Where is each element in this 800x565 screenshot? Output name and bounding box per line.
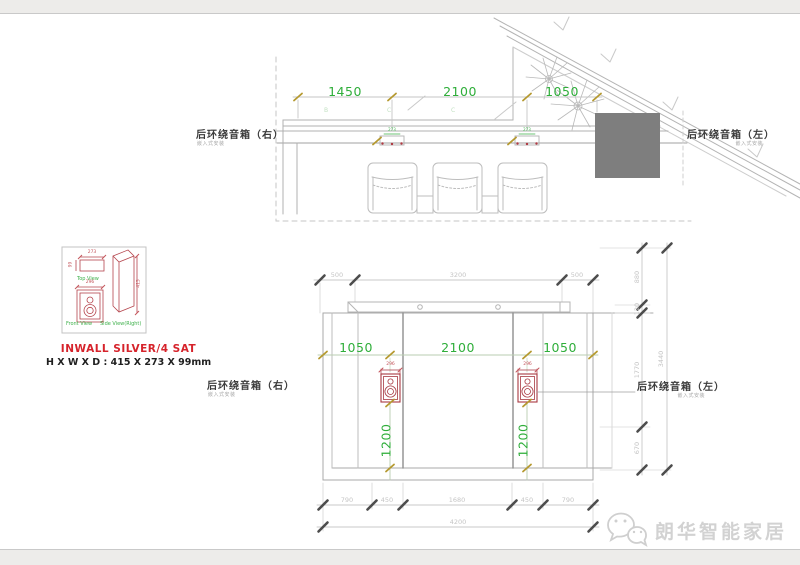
height-dim-1200: 1200 [379, 420, 394, 462]
grid-letter: B [324, 107, 328, 114]
plan-speaker-right [380, 134, 404, 145]
wechat-logo-icon [608, 514, 646, 546]
flush-mount-note: 嵌入式安装 [687, 140, 763, 147]
dim-2100: 2100 [440, 84, 480, 99]
front-view-label: Front View [66, 321, 92, 327]
top-elevation [276, 17, 800, 221]
brand-watermark: 朗华智能家居 [655, 517, 787, 544]
grid-letter: C [451, 107, 455, 114]
dim-2100: 2100 [438, 340, 478, 355]
height-dim-1200: 1200 [516, 420, 531, 462]
rear-right-speaker-label-top: 后环绕音箱（右） [196, 126, 284, 141]
seg-dim: 1680 [443, 496, 471, 504]
dim-1050-left: 1050 [336, 340, 376, 355]
flush-mount-note: 嵌入式安装 [197, 140, 225, 147]
dim-1450: 1450 [325, 84, 365, 99]
inwall-speaker-left [518, 369, 537, 402]
detail-dim-cutout: 296 [82, 280, 98, 285]
right-dim: 120 [633, 294, 641, 324]
speaker-top-view [80, 260, 104, 271]
bottom-elevation [314, 243, 672, 532]
total-dim: 4200 [444, 518, 472, 526]
seg-dim: 450 [375, 496, 399, 504]
seg-dim: 450 [515, 496, 539, 504]
detail-dim-width: 273 [84, 250, 100, 255]
flush-mount-note: 嵌入式安装 [637, 392, 705, 399]
right-dim: 880 [633, 262, 641, 292]
seg-dim: 790 [556, 496, 580, 504]
side-view-label: Side View(Right) [100, 321, 141, 327]
grid-letter: C [387, 107, 391, 114]
right-dim: 670 [633, 433, 641, 463]
rear-right-speaker-label-bottom: 后环绕音箱（右） [207, 377, 295, 392]
cad-sheet: 1450 2100 1050 273 273 B C C 后环绕音箱（右） 嵌入… [0, 0, 800, 565]
wall-outline [323, 313, 653, 480]
dim-3200: 3200 [444, 271, 472, 279]
chair [433, 163, 482, 213]
rear-left-speaker-label-top: 后环绕音箱（左） [687, 126, 775, 141]
product-size-line: H X W X D : 415 X 273 X 99mm [46, 357, 211, 368]
glass-marks [408, 96, 516, 119]
dim-500-right: 500 [565, 271, 589, 279]
seg-dim: 790 [335, 496, 359, 504]
plan-speaker-dim: 273 [517, 127, 537, 132]
product-name: INWALL SILVER/4 SAT [46, 343, 211, 355]
dim-500-left: 500 [325, 271, 349, 279]
detail-dim-height: 415 [137, 275, 142, 293]
plan-speaker-dim: 273 [382, 127, 402, 132]
inwall-speaker-right [381, 369, 400, 402]
flush-mount-note: 嵌入式安装 [208, 391, 236, 398]
chair [498, 163, 547, 213]
dim-1050-right: 1050 [540, 340, 580, 355]
chair-armrest [482, 196, 498, 213]
rear-left-speaker-label-bottom: 后环绕音箱（左） [637, 378, 725, 393]
cutout-dim: 296 [517, 362, 538, 367]
wall-mullions [332, 313, 612, 468]
speaker-front-view [77, 290, 103, 322]
chair [368, 163, 417, 213]
cutout-dim: 296 [380, 362, 401, 367]
plan-speaker-left [515, 134, 539, 145]
right-total-dim: 3440 [657, 344, 665, 374]
dim-1050: 1050 [542, 84, 582, 99]
ceiling-beam [348, 302, 570, 312]
gray-cover-box [595, 113, 660, 178]
cad-linework [0, 0, 800, 565]
theater-chairs [368, 163, 547, 213]
chair-armrest [417, 196, 433, 213]
detail-dim-depth: 99 [69, 258, 74, 272]
